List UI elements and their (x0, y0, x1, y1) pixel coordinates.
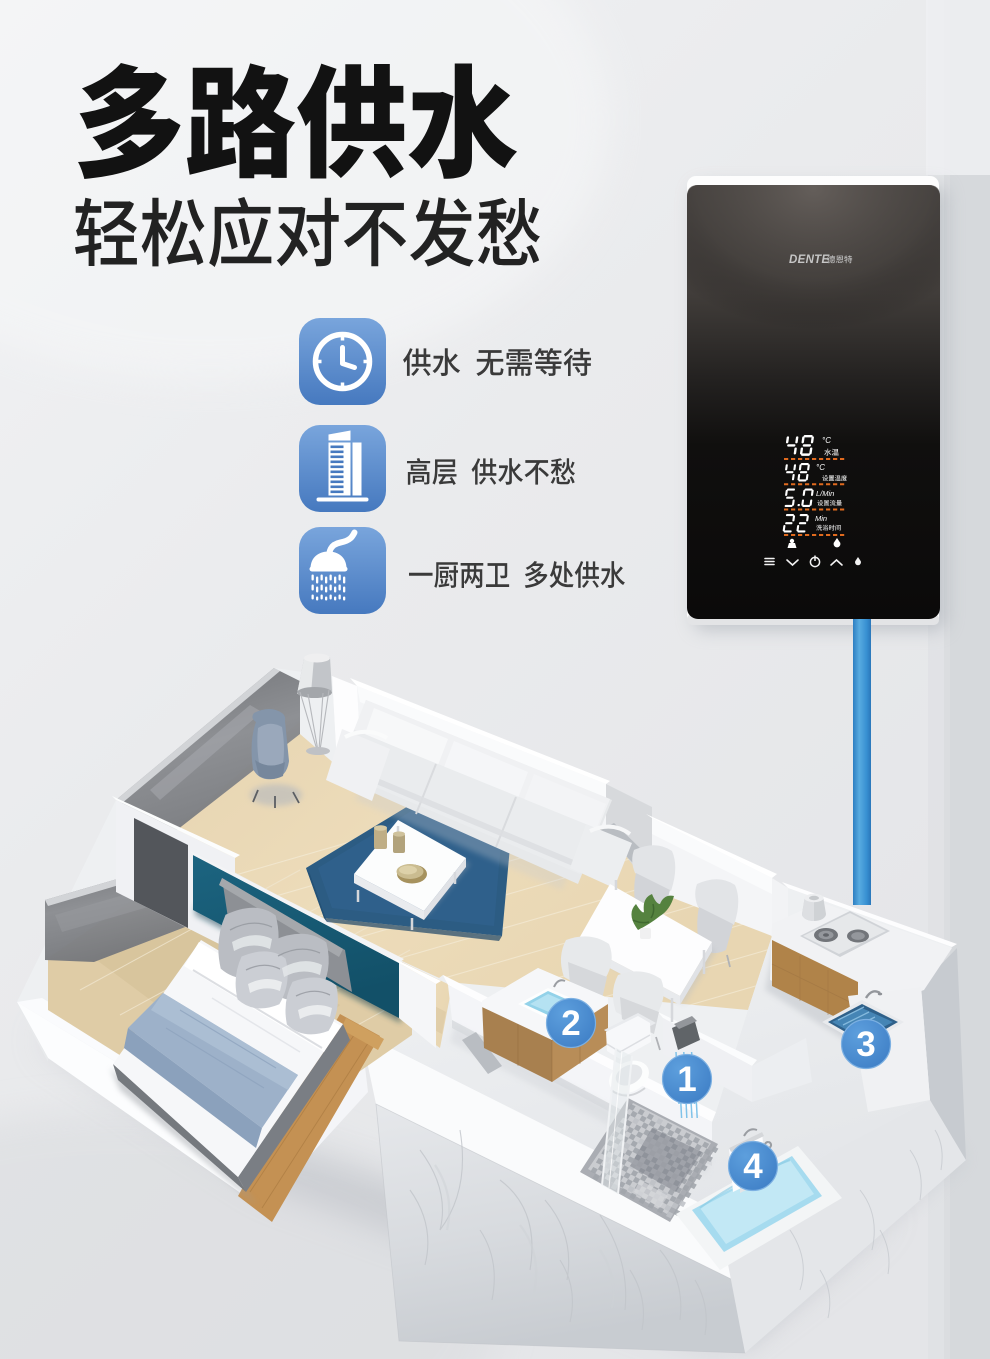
svg-text:DENTE: DENTE (789, 254, 830, 266)
svg-text:L/Min: L/Min (816, 489, 834, 498)
svg-text:4: 4 (743, 1147, 763, 1186)
svg-text:2: 2 (561, 1004, 580, 1043)
svg-text:Min: Min (815, 514, 827, 523)
svg-text:°C: °C (822, 436, 831, 445)
svg-text:3: 3 (856, 1025, 875, 1064)
svg-text:°C: °C (816, 463, 825, 472)
svg-text:1: 1 (677, 1060, 696, 1099)
